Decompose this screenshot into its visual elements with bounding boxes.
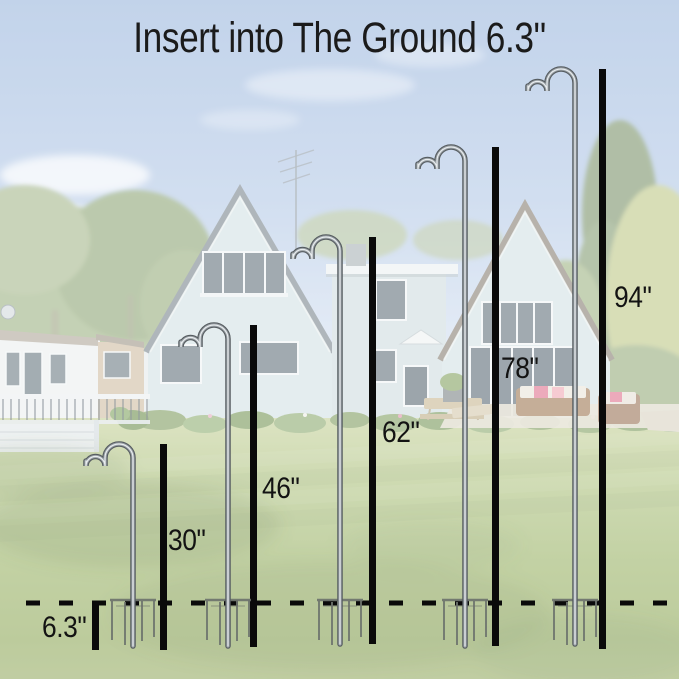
- product-infographic: Insert into The Ground 6.3" 30" 46" 62" …: [0, 0, 679, 679]
- shepherd-hook-pole-78: [418, 147, 488, 646]
- height-label-78: 78": [501, 352, 538, 386]
- height-label-94: 94": [614, 281, 651, 315]
- insert-depth-label: 6.3": [42, 611, 86, 645]
- shepherd-hook-pole-46: [181, 325, 251, 646]
- measure-bar-78: [492, 147, 499, 646]
- height-label-46: 46": [262, 472, 299, 506]
- height-label-62: 62": [382, 416, 419, 450]
- measure-bar-depth: [92, 605, 99, 650]
- shepherd-hook-pole-62: [293, 237, 363, 645]
- diagram-title-text: Insert into The Ground 6.3": [133, 14, 545, 63]
- diagram-title: Insert into The Ground 6.3": [0, 14, 679, 63]
- measure-bar-46: [250, 325, 257, 647]
- size-diagram: [0, 0, 679, 679]
- shepherd-hook-pole-94: [528, 69, 598, 645]
- measure-bar-30: [160, 444, 167, 650]
- measure-bar-94: [599, 69, 606, 649]
- measure-bar-62: [369, 237, 376, 644]
- height-label-30: 30": [168, 524, 205, 558]
